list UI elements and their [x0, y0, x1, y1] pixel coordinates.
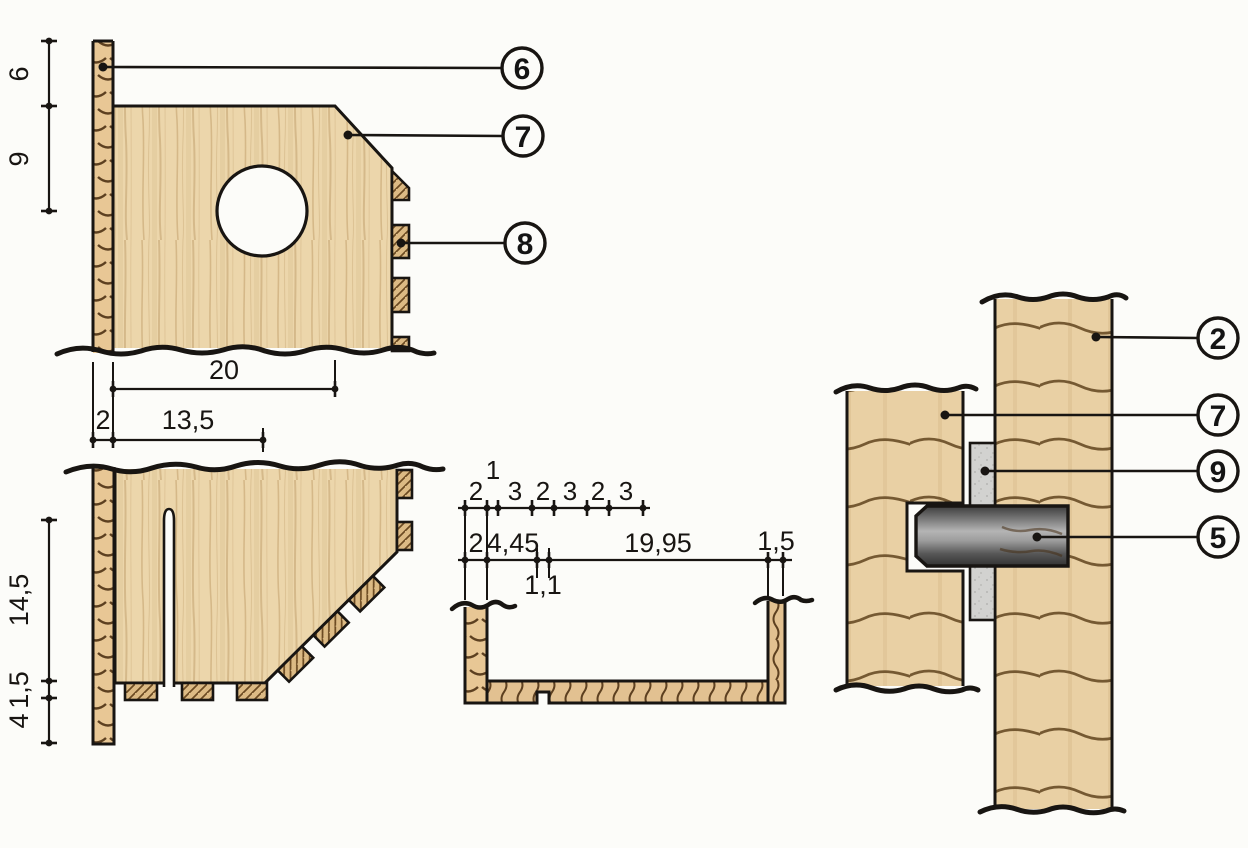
- finger-tab: [397, 522, 412, 550]
- finger-tabs-bottom: [125, 683, 267, 700]
- dim-label: 3: [508, 476, 522, 506]
- dim-label: 2: [468, 528, 483, 558]
- technical-drawing: 6 9 20 2 13,5 6 7: [0, 0, 1248, 848]
- dimension-tray-main-row: 2 4,45 19,95 1,5 1,1: [458, 508, 795, 600]
- dim-label: 3: [563, 476, 577, 506]
- side-panel-view: 14,5 1,5 4: [4, 462, 443, 747]
- dim-label: 13,5: [162, 405, 215, 435]
- tray-section-view: 2 1 3 2 3 2 3 2 4,45 19,95 1,5 1,1: [452, 455, 812, 703]
- dim-label: 14,5: [4, 574, 34, 627]
- finger-tab: [237, 683, 267, 700]
- dimension-front-vertical: 6 9: [4, 38, 57, 215]
- dim-label: 1,5: [4, 671, 34, 709]
- dimension-front-horizontal: 20 2 13,5: [90, 355, 339, 452]
- dim-label: 2: [469, 476, 483, 506]
- entrance-hole: [217, 166, 307, 256]
- dim-label: 20: [209, 355, 239, 385]
- finger-tab: [397, 470, 412, 498]
- finger-tab: [392, 171, 409, 200]
- break-line: [755, 597, 812, 603]
- callout-number: 5: [1210, 522, 1227, 555]
- dim-label: 2: [95, 405, 110, 435]
- dim-label: 1: [486, 455, 500, 485]
- finger-tab: [125, 683, 157, 700]
- dim-label: 4: [4, 713, 34, 728]
- dim-label: 3: [619, 476, 633, 506]
- dim-label: 2: [536, 476, 550, 506]
- dim-label: 19,95: [624, 528, 692, 558]
- corner-post-endgrain: [93, 41, 113, 353]
- dim-label: 1,1: [524, 570, 562, 600]
- side-panel-shape: [115, 469, 397, 683]
- break-line: [836, 385, 976, 392]
- dimension-side-vertical: 14,5 1,5 4: [4, 517, 57, 747]
- technical-drawing-page: 6 9 20 2 13,5 6 7: [0, 0, 1248, 848]
- dim-label: 4,45: [487, 528, 540, 558]
- dim-label: 6: [4, 66, 34, 81]
- dim-label: 9: [4, 151, 34, 166]
- callout-number: 7: [1210, 400, 1227, 433]
- dim-label: 1,5: [757, 526, 795, 556]
- tray-bottom-board: [487, 681, 768, 703]
- tray-right-wall: [768, 601, 785, 703]
- tray-left-wall: [465, 607, 487, 703]
- callout-number: 2: [1210, 323, 1227, 356]
- break-line: [452, 602, 515, 609]
- finger-tabs-right: [392, 171, 409, 351]
- callout-number: 7: [515, 121, 532, 154]
- corner-post-endgrain: [93, 467, 114, 744]
- dim-label: 2: [591, 476, 605, 506]
- joint-detail-view: 2 7 9 5: [836, 294, 1238, 813]
- finger-tab: [182, 683, 213, 700]
- callout-number: 6: [514, 53, 531, 86]
- dimension-tray-top-row: 2 1 3 2 3 2 3: [458, 455, 650, 516]
- callout-number: 9: [1210, 456, 1227, 489]
- saw-slot: [164, 509, 174, 687]
- finger-tab: [392, 278, 409, 312]
- callout-number: 8: [517, 228, 534, 261]
- front-panel-view: 6 9 20 2 13,5 6 7: [4, 38, 545, 452]
